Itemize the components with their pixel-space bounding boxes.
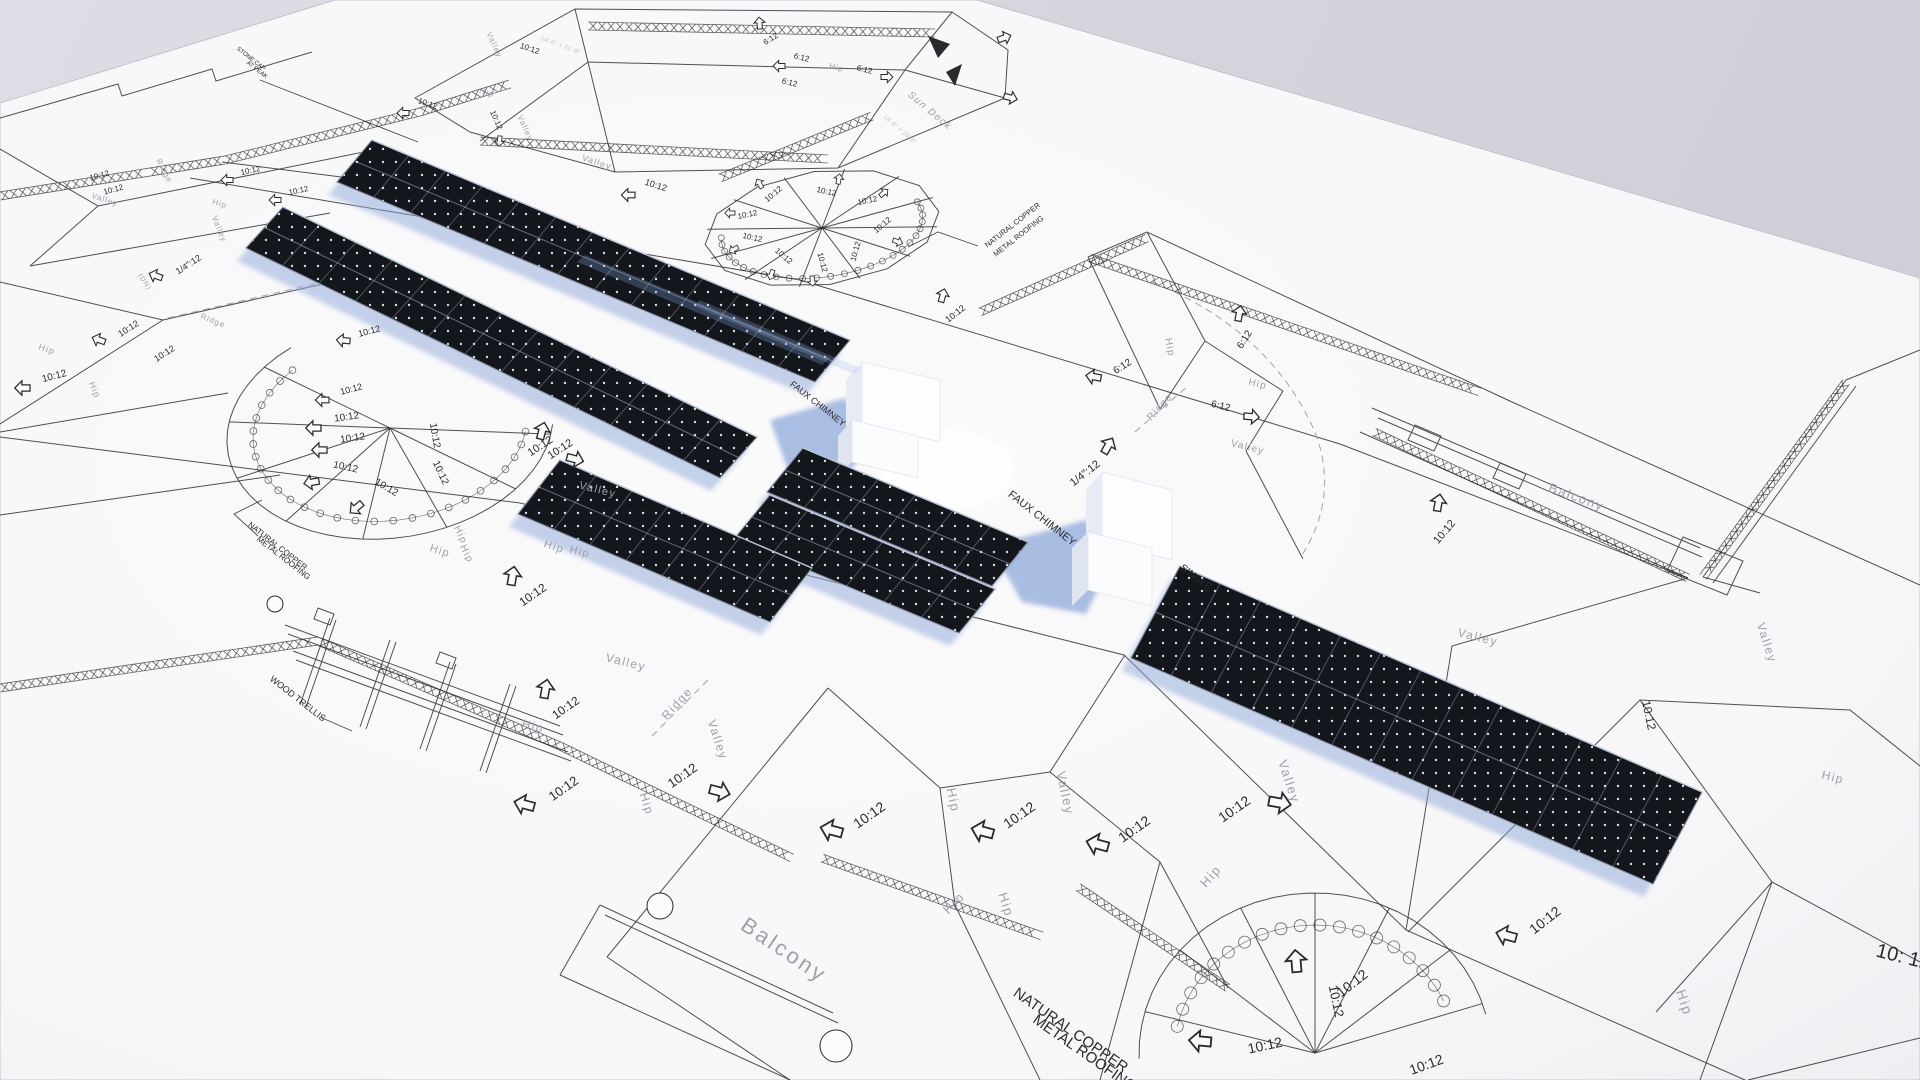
balcony-post <box>820 1030 852 1062</box>
trellis-post <box>267 596 283 612</box>
roof-plan-rendering: 10:1210:1210:1210:12ValleyRidgeHipValley… <box>0 0 1920 1080</box>
render-viewport: 10:1210:1210:1210:12ValleyRidgeHipValley… <box>0 0 1920 1080</box>
balcony-post <box>647 893 673 919</box>
